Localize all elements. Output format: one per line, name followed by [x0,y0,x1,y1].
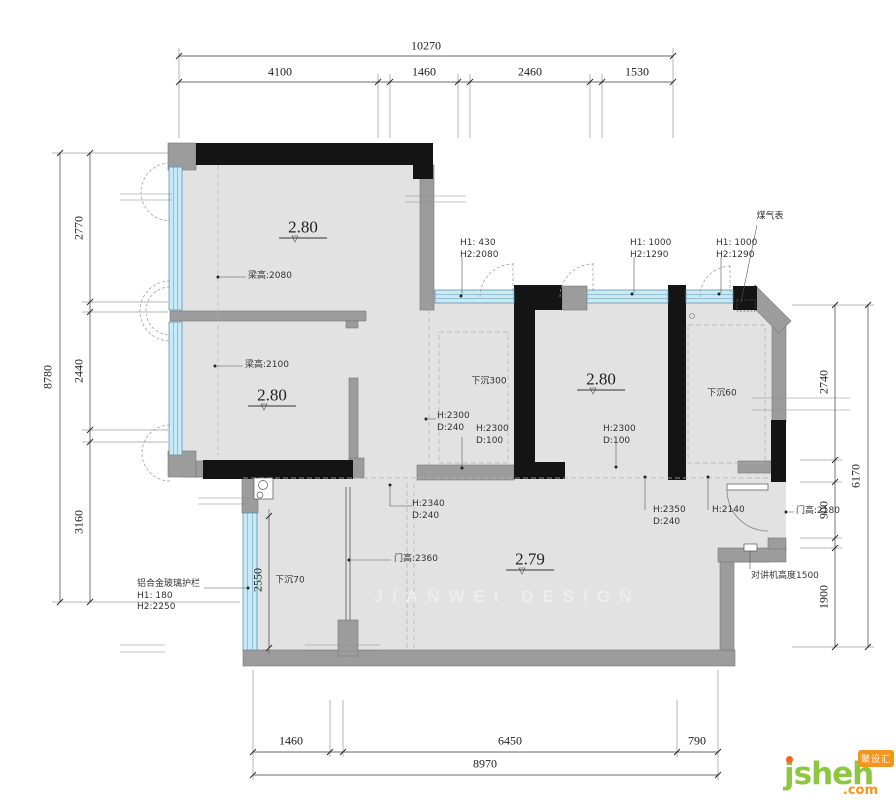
plan-labels: 1027041001460246015308780277024403160274… [0,0,896,800]
ann-railing: 铝合金玻璃护栏 H1: 180 H2:2250 [137,579,200,614]
dim-left-2440: 2440 [72,359,87,383]
dim-bottom-790: 790 [688,734,706,749]
ann-intercom: 对讲机高度1500 [751,571,819,583]
dim-right-1900: 1900 [817,585,832,609]
ann-beam-2080: 梁高:2080 [248,271,292,283]
ann-opening-4: H:2340 D:240 [412,499,445,522]
level-bedroom-2: 2.80 [248,386,296,407]
ann-opening-6: H:2140 [712,505,745,517]
ann-sunken-300: 下沉300 [471,376,506,387]
dim-left-overall: 8780 [41,365,56,389]
ann-window-3: H1: 1000 H2:1290 [716,238,757,261]
ann-door-2360: 门高:2360 [394,554,438,566]
ann-opening-3: H:2300 D:100 [603,424,636,447]
dim-bottom-overall: 8970 [473,757,497,772]
dim-top-overall: 10270 [411,39,441,54]
floor-plan-page: JIANWEI DESIGN 1027041001460246015308780… [0,0,896,800]
dim-right-overall: 6170 [849,464,864,488]
ann-gas-meter: 煤气表 [756,211,783,222]
dim-balcony-2550: 2550 [251,568,266,592]
jsheh-logo: jsheh 聚设汇 .com [782,750,894,798]
ann-window-2: H1: 1000 H2:1290 [630,238,671,261]
dim-bottom-1460: 1460 [279,734,303,749]
ann-beam-2100: 梁高:2100 [245,360,289,372]
level-bedroom-1: 2.80 [279,218,327,239]
ann-opening-5: H:2350 D:240 [653,505,686,528]
ann-sunken-70: 下沉70 [275,575,304,586]
dim-left-2770: 2770 [72,216,87,240]
level-dining: 2.80 [577,370,625,391]
ann-sunken-60: 下沉60 [707,388,736,399]
ann-door-2180: 门高:2180 [796,506,840,518]
dim-top-1530: 1530 [625,65,649,80]
dim-top-4100: 4100 [268,65,292,80]
logo-tld: .com [843,783,878,798]
level-living: 2.79 [506,550,554,571]
dim-top-2460: 2460 [518,65,542,80]
ann-opening-1: H:2300 D:240 [437,411,470,434]
ann-window-1: H1: 430 H2:2080 [460,238,498,261]
dim-right-2740: 2740 [817,370,832,394]
logo-badge: 聚设汇 [858,750,894,767]
dim-top-1460: 1460 [412,65,436,80]
dim-left-3160: 3160 [72,510,87,534]
dim-bottom-6450: 6450 [498,734,522,749]
logo-dot-icon [786,756,793,763]
ann-opening-2: H:2300 D:100 [476,424,509,447]
